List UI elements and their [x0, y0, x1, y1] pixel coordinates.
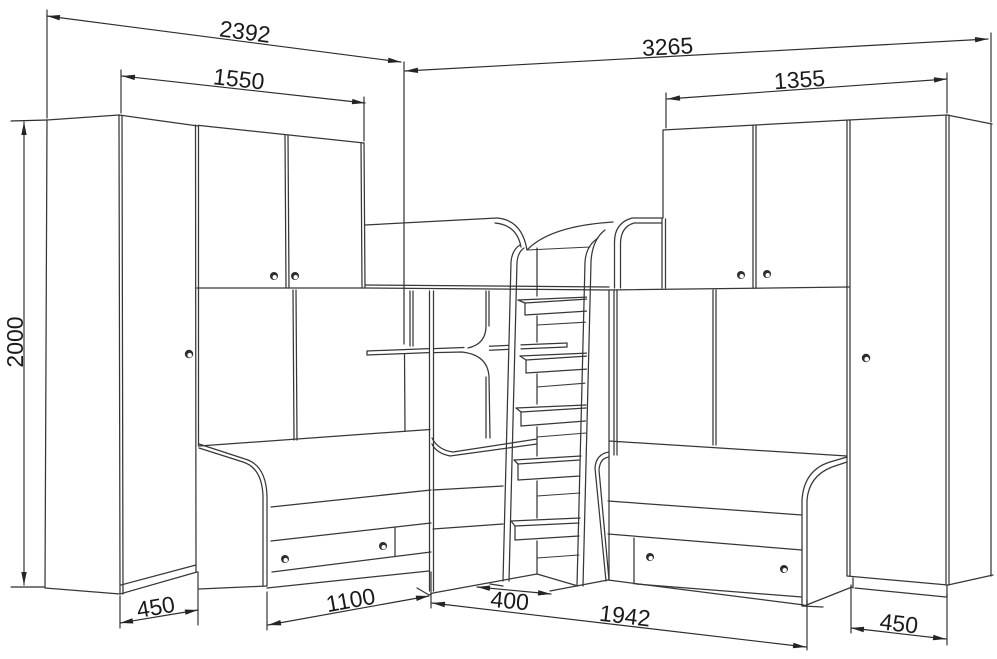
- svg-text:2000: 2000: [2, 316, 28, 367]
- svg-text:1355: 1355: [773, 65, 826, 95]
- svg-text:3265: 3265: [641, 32, 694, 61]
- svg-text:450: 450: [878, 608, 919, 638]
